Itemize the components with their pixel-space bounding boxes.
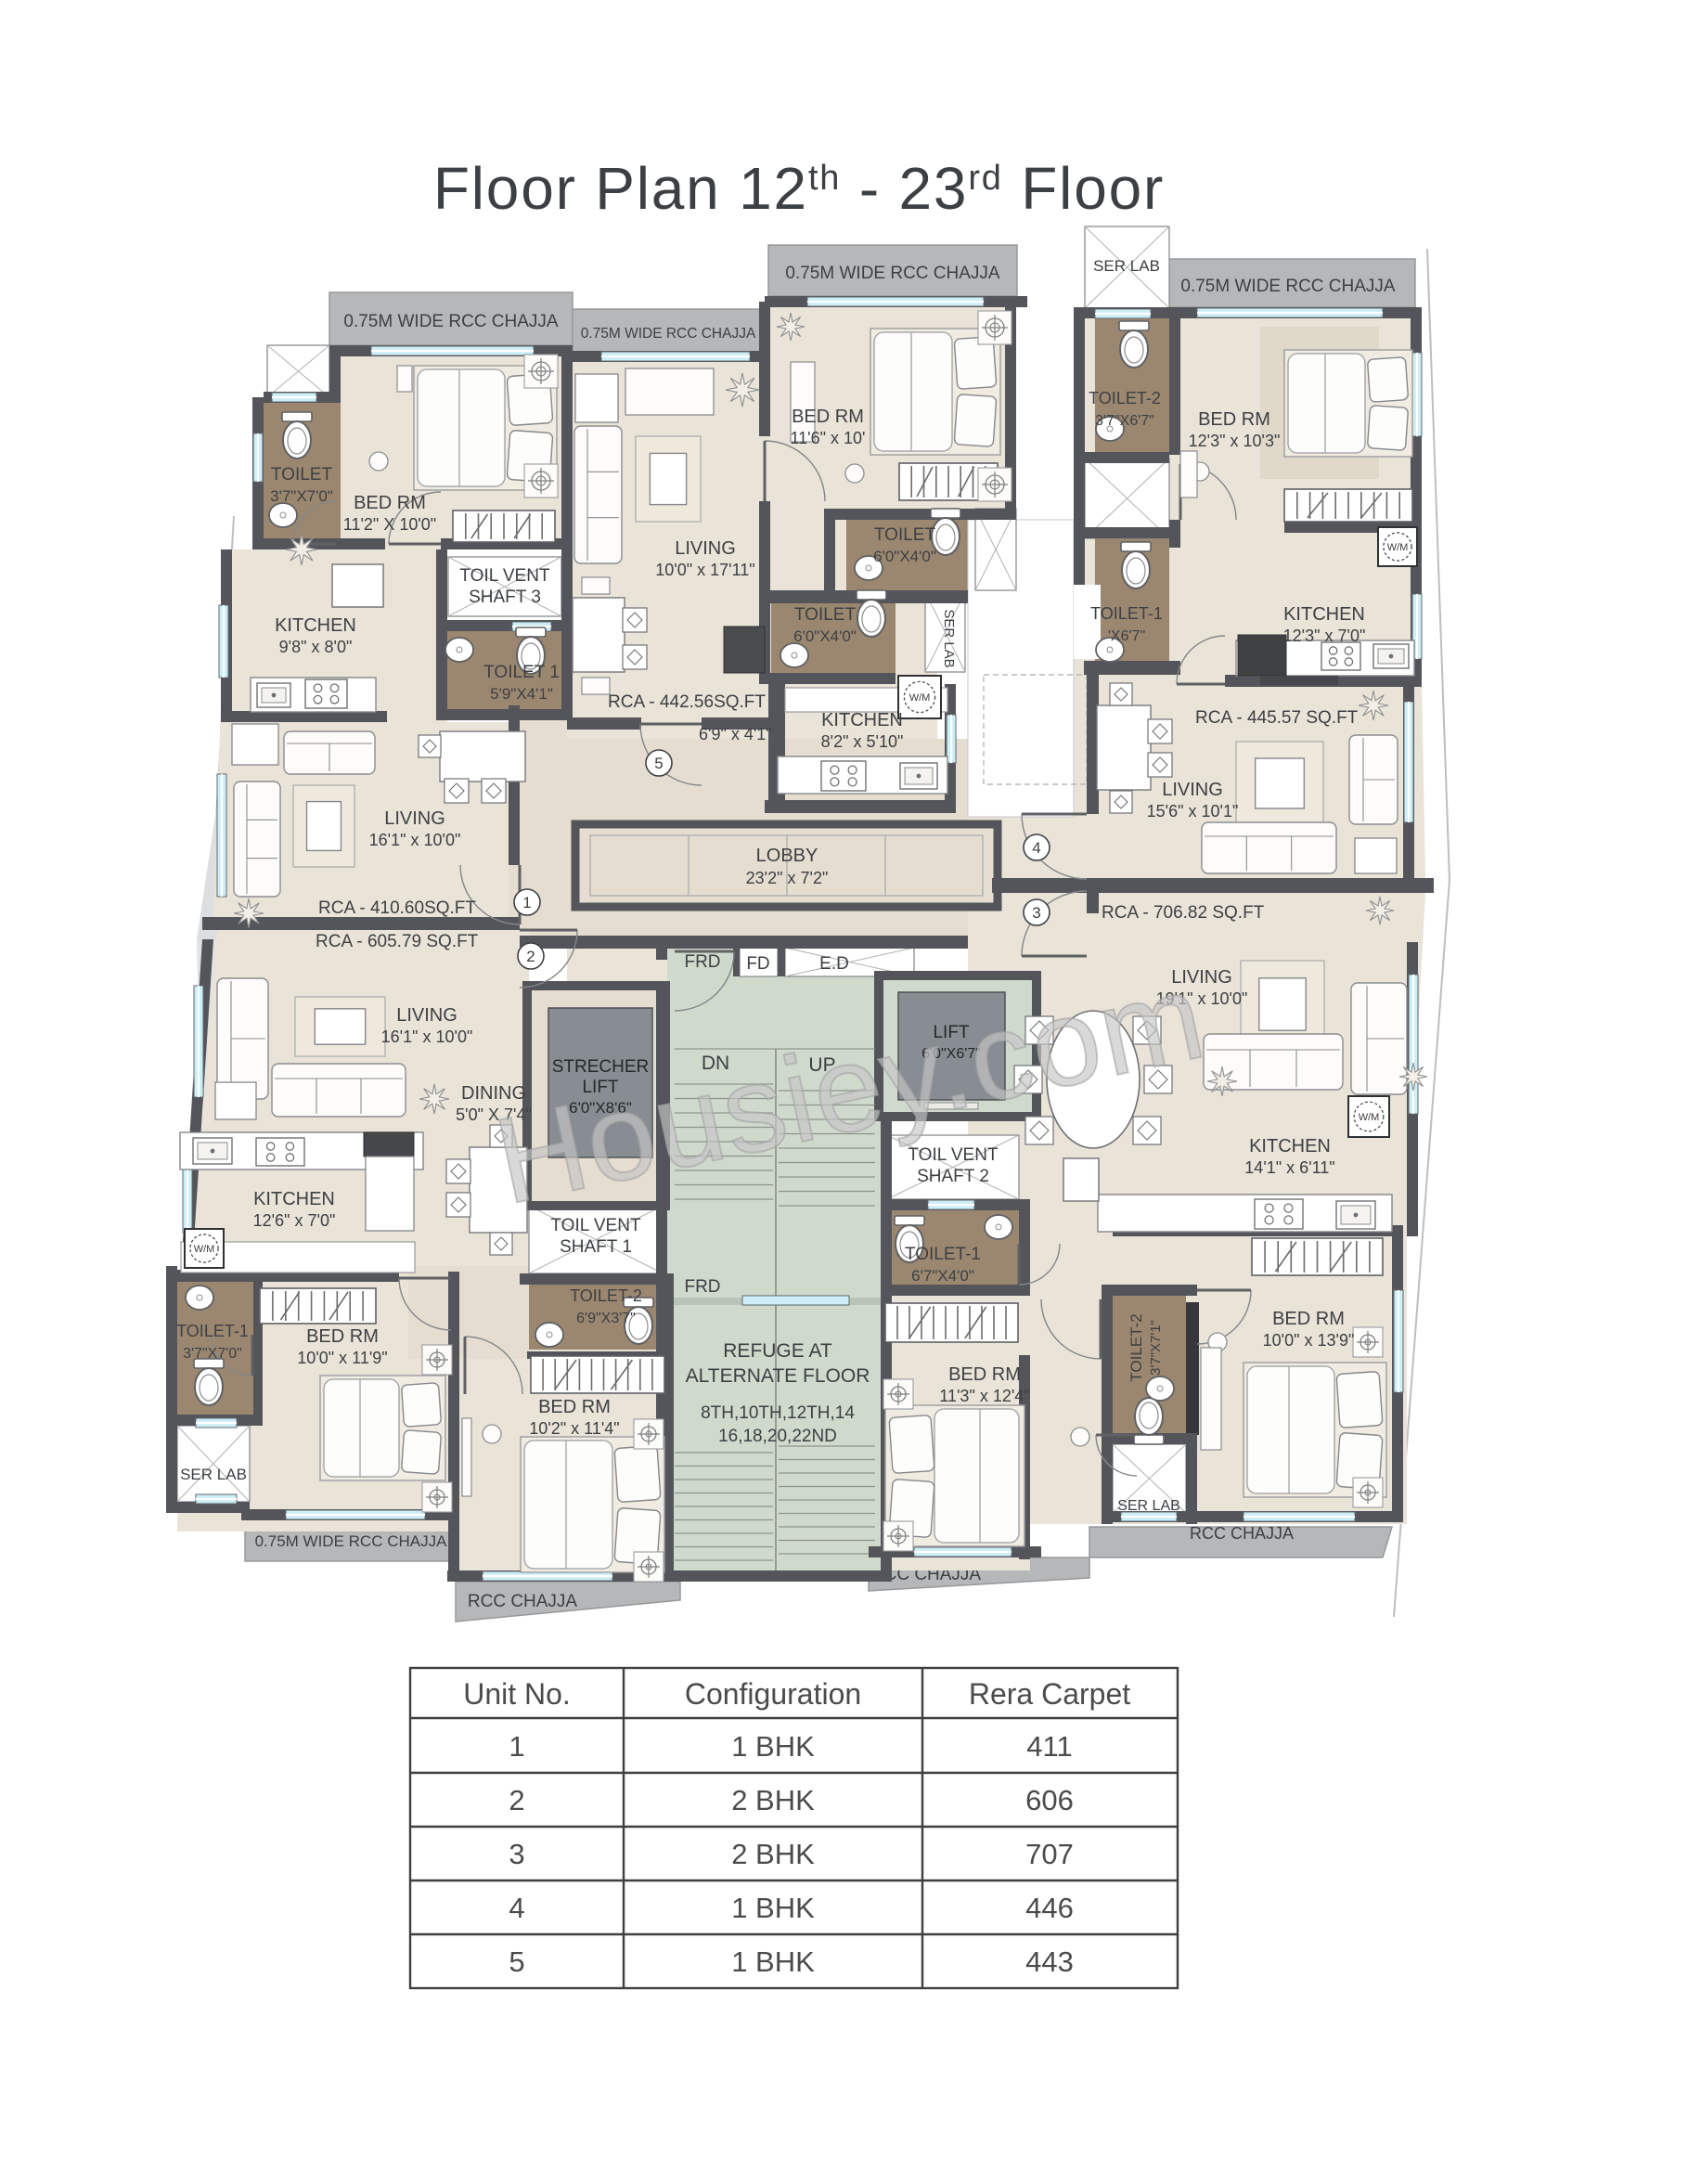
svg-text:SHAFT 2: SHAFT 2 [917, 1167, 989, 1186]
svg-text:KITCHEN: KITCHEN [253, 1189, 335, 1209]
svg-text:2 BHK: 2 BHK [731, 1784, 815, 1816]
svg-text:16,18,20,22ND: 16,18,20,22ND [718, 1427, 837, 1446]
svg-text:SER LAB: SER LAB [941, 609, 957, 667]
svg-text:3: 3 [1032, 904, 1040, 922]
svg-text:10'2" x 11'4": 10'2" x 11'4" [529, 1419, 619, 1438]
svg-text:3: 3 [509, 1838, 524, 1870]
svg-text:6'9"X3'7": 6'9"X3'7" [576, 1311, 636, 1326]
svg-text:446: 446 [1025, 1892, 1074, 1924]
svg-text:REFUGE AT: REFUGE AT [723, 1340, 832, 1362]
svg-text:1: 1 [522, 894, 531, 911]
svg-text:W/M: W/M [1359, 1112, 1380, 1123]
svg-text:10'0" x 17'11": 10'0" x 17'11" [655, 561, 754, 579]
svg-text:11'2" X 10'0": 11'2" X 10'0" [343, 515, 436, 534]
svg-text:2: 2 [509, 1784, 524, 1816]
svg-text:Unit No.: Unit No. [463, 1677, 571, 1711]
svg-text:0.75M WIDE RCC CHAJJA: 0.75M WIDE RCC CHAJJA [785, 264, 1000, 283]
svg-text:W/M: W/M [194, 1244, 215, 1255]
svg-text:14'1" x 6'11": 14'1" x 6'11" [1244, 1158, 1334, 1177]
svg-text:KITCHEN: KITCHEN [275, 615, 356, 636]
svg-text:FRD: FRD [684, 952, 720, 972]
svg-text:BED RM: BED RM [1198, 409, 1270, 430]
svg-text:3'7"X6'7": 3'7"X6'7" [1095, 413, 1154, 429]
svg-text:BED RM: BED RM [1272, 1309, 1345, 1329]
svg-text:6'0"X4'0": 6'0"X4'0" [793, 627, 857, 645]
svg-text:SER LAB: SER LAB [1093, 257, 1160, 275]
svg-text:TOILET: TOILET [271, 465, 333, 485]
svg-text:LIVING: LIVING [384, 808, 445, 829]
svg-text:TOILET-1: TOILET-1 [1090, 604, 1163, 623]
svg-text:12'6" x 7'0": 12'6" x 7'0" [253, 1211, 336, 1230]
svg-text:Configuration: Configuration [685, 1677, 861, 1711]
svg-text:RCC CHAJJA: RCC CHAJJA [468, 1592, 578, 1611]
svg-text:BED RM: BED RM [792, 407, 864, 427]
svg-text:SHAFT 1: SHAFT 1 [560, 1237, 632, 1257]
svg-text:6'7"X4'0": 6'7"X4'0" [911, 1267, 974, 1285]
svg-text:6'9" x 4'1": 6'9" x 4'1" [699, 725, 772, 743]
svg-text:5: 5 [509, 1945, 524, 1978]
svg-text:8'2" x 5'10": 8'2" x 5'10" [821, 732, 904, 751]
svg-text:12'3" x 10'3": 12'3" x 10'3" [1189, 432, 1281, 450]
svg-text:ALTERNATE FLOOR: ALTERNATE FLOOR [686, 1365, 870, 1387]
svg-text:SER LAB: SER LAB [180, 1466, 247, 1483]
svg-text:0.75M WIDE RCC CHAJJA: 0.75M WIDE RCC CHAJJA [1180, 277, 1396, 296]
svg-text:6'0"X4'0": 6'0"X4'0" [873, 548, 936, 565]
svg-text:E.D: E.D [819, 954, 849, 974]
svg-text:4: 4 [509, 1892, 524, 1924]
svg-text:2: 2 [526, 948, 535, 965]
svg-text:RCA - 442.56SQ.FT: RCA - 442.56SQ.FT [608, 692, 766, 712]
svg-text:KITCHEN: KITCHEN [1249, 1136, 1331, 1157]
svg-text:FRD: FRD [684, 1277, 720, 1297]
svg-text:RCA - 605.79 SQ.FT: RCA - 605.79 SQ.FT [316, 932, 479, 951]
svg-text:606: 606 [1025, 1784, 1074, 1816]
svg-text:1 BHK: 1 BHK [731, 1945, 815, 1978]
svg-text:4: 4 [1032, 839, 1040, 857]
svg-text:707: 707 [1025, 1838, 1074, 1870]
svg-text:KITCHEN: KITCHEN [821, 710, 903, 730]
svg-text:8TH,10TH,12TH,14: 8TH,10TH,12TH,14 [701, 1403, 855, 1423]
svg-text:TOILET-2: TOILET-2 [570, 1286, 642, 1305]
svg-text:TOILET: TOILET [874, 525, 936, 545]
svg-text:RCA - 410.60SQ.FT: RCA - 410.60SQ.FT [318, 898, 476, 918]
svg-text:LIVING: LIVING [396, 1005, 457, 1026]
svg-text:BED RM: BED RM [538, 1397, 611, 1417]
svg-text:23'2" x 7'2": 23'2" x 7'2" [746, 869, 829, 887]
svg-text:TOIL VENT: TOIL VENT [459, 566, 550, 586]
svg-text:9'8" x 8'0": 9'8" x 8'0" [279, 638, 353, 656]
svg-text:10'0" x 11'9": 10'0" x 11'9" [297, 1349, 387, 1367]
svg-text:11'6" x 10': 11'6" x 10' [791, 429, 866, 447]
svg-text:5: 5 [654, 755, 663, 772]
svg-text:RCC CHAJJA: RCC CHAJJA [1190, 1524, 1294, 1543]
svg-text:RCA - 445.57 SQ.FT: RCA - 445.57 SQ.FT [1195, 708, 1359, 728]
svg-text:11'3" x 12'4": 11'3" x 12'4" [939, 1387, 1029, 1405]
svg-text:3'7"X7'0": 3'7"X7'0" [183, 1346, 242, 1362]
svg-text:LOBBY: LOBBY [756, 846, 818, 866]
svg-text:BED RM: BED RM [948, 1364, 1021, 1385]
svg-text:3'7"X7'0": 3'7"X7'0" [270, 487, 333, 505]
svg-text:BED RM: BED RM [306, 1326, 379, 1347]
svg-text:LIVING: LIVING [1162, 780, 1223, 800]
svg-text:TOILET-1: TOILET-1 [176, 1322, 249, 1340]
svg-text:FD: FD [746, 954, 769, 974]
svg-text:W/M: W/M [1387, 542, 1409, 553]
svg-text:'X6'7": 'X6'7" [1108, 628, 1145, 644]
svg-text:Floor Plan 12th - 23rd Floor: Floor Plan 12th - 23rd Floor [433, 155, 1165, 222]
svg-text:0.75M WIDE RCC CHAJJA: 0.75M WIDE RCC CHAJJA [581, 326, 756, 342]
svg-text:10'0" x 13'9": 10'0" x 13'9" [1263, 1331, 1355, 1350]
svg-text:TOILET-1: TOILET-1 [905, 1245, 981, 1264]
svg-text:LIVING: LIVING [675, 538, 736, 559]
svg-text:W/M: W/M [909, 692, 931, 704]
svg-text:RCA - 706.82 SQ.FT: RCA - 706.82 SQ.FT [1102, 903, 1265, 923]
svg-text:0.75M WIDE RCC CHAJJA: 0.75M WIDE RCC CHAJJA [255, 1532, 448, 1550]
svg-text:0.75M WIDE RCC CHAJJA: 0.75M WIDE RCC CHAJJA [343, 312, 559, 331]
svg-text:TOILET-2: TOILET-2 [1128, 1313, 1145, 1381]
svg-text:443: 443 [1025, 1945, 1074, 1978]
svg-text:5'9"X4'1": 5'9"X4'1" [490, 685, 553, 703]
svg-text:2 BHK: 2 BHK [731, 1838, 815, 1870]
svg-text:TOIL VENT: TOIL VENT [550, 1216, 641, 1235]
svg-text:411: 411 [1026, 1730, 1072, 1763]
svg-text:TOIL VENT: TOIL VENT [908, 1145, 999, 1165]
svg-text:1 BHK: 1 BHK [731, 1730, 815, 1763]
svg-text:1 BHK: 1 BHK [731, 1892, 815, 1924]
svg-text:Rera Carpet: Rera Carpet [969, 1677, 1130, 1711]
svg-text:16'1" x 10'0": 16'1" x 10'0" [381, 1027, 473, 1046]
svg-text:16'1" x 10'0": 16'1" x 10'0" [369, 831, 461, 849]
svg-text:3'7"X7'1": 3'7"X7'1" [1148, 1320, 1164, 1376]
svg-text:1: 1 [509, 1730, 524, 1763]
svg-text:TOILET: TOILET [794, 605, 857, 625]
svg-text:TOILET 1: TOILET 1 [483, 663, 560, 682]
svg-text:12'3" x 7'0": 12'3" x 7'0" [1283, 627, 1366, 645]
svg-text:SHAFT 3: SHAFT 3 [469, 588, 541, 607]
svg-text:TOILET-2: TOILET-2 [1089, 389, 1161, 407]
svg-text:KITCHEN: KITCHEN [1283, 604, 1365, 625]
svg-text:BED RM: BED RM [354, 493, 426, 513]
svg-text:15'6" x 10'1": 15'6" x 10'1" [1147, 802, 1239, 821]
